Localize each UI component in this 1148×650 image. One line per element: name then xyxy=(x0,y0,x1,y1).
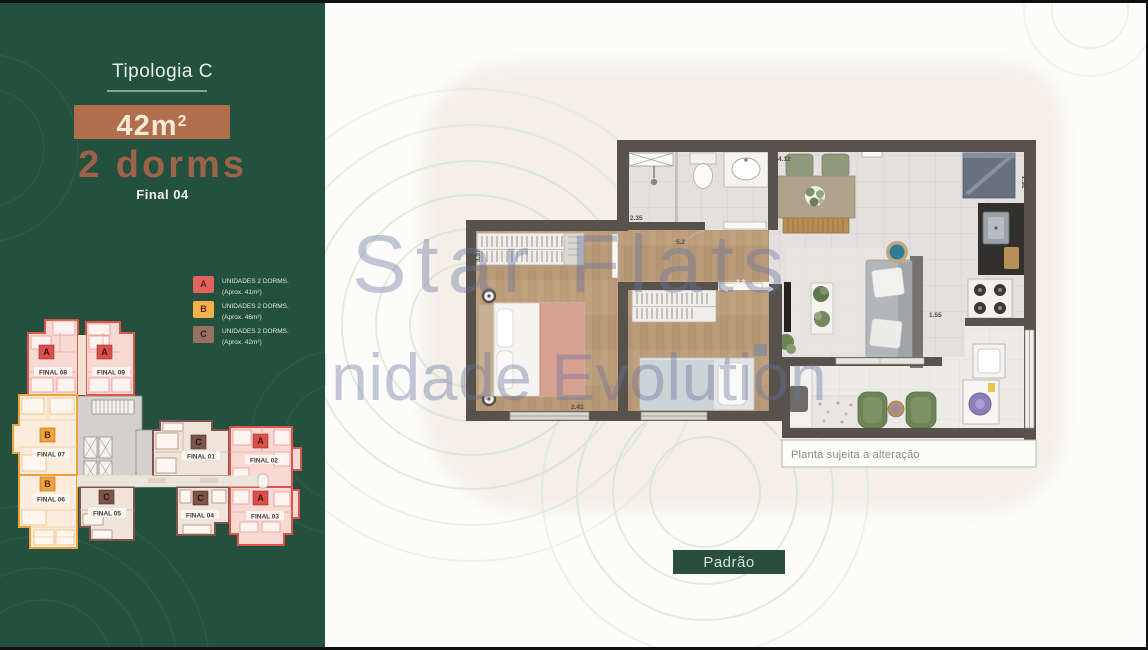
svg-text:C: C xyxy=(197,493,204,503)
svg-text:Planta sujeita a alteração: Planta sujeita a alteração xyxy=(791,449,920,461)
svg-text:FINAL 06: FINAL 06 xyxy=(37,497,65,504)
svg-text:FINAL 01: FINAL 01 xyxy=(187,454,215,461)
svg-text:FINAL 07: FINAL 07 xyxy=(37,452,65,459)
svg-text:A: A xyxy=(101,347,108,357)
svg-text:FINAL 02: FINAL 02 xyxy=(250,458,278,465)
svg-text:FINAL 09: FINAL 09 xyxy=(97,370,125,377)
svg-text:0.67: 0.67 xyxy=(995,428,1008,435)
svg-text:FINAL 08: FINAL 08 xyxy=(39,370,67,377)
svg-text:2.92: 2.92 xyxy=(1020,176,1027,189)
svg-text:A: A xyxy=(257,493,264,503)
svg-text:FINAL 05: FINAL 05 xyxy=(93,511,121,518)
svg-text:4.12: 4.12 xyxy=(778,156,791,163)
svg-text:B: B xyxy=(44,479,51,489)
svg-text:B: B xyxy=(44,430,51,440)
svg-text:C: C xyxy=(103,492,110,502)
svg-text:C: C xyxy=(195,437,202,447)
svg-text:1.55: 1.55 xyxy=(929,312,942,319)
svg-text:FINAL 03: FINAL 03 xyxy=(251,514,279,521)
svg-text:FINAL 04: FINAL 04 xyxy=(186,513,214,520)
svg-text:A: A xyxy=(43,347,50,357)
svg-text:A: A xyxy=(257,436,264,446)
